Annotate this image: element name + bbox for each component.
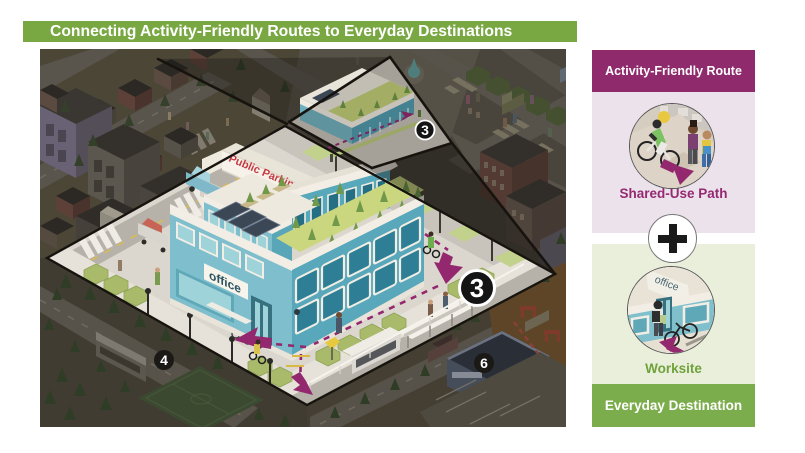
svg-text:6: 6 [480,355,488,371]
svg-text:3: 3 [470,273,484,303]
svg-text:4: 4 [160,352,168,368]
svg-text:3: 3 [421,122,429,138]
